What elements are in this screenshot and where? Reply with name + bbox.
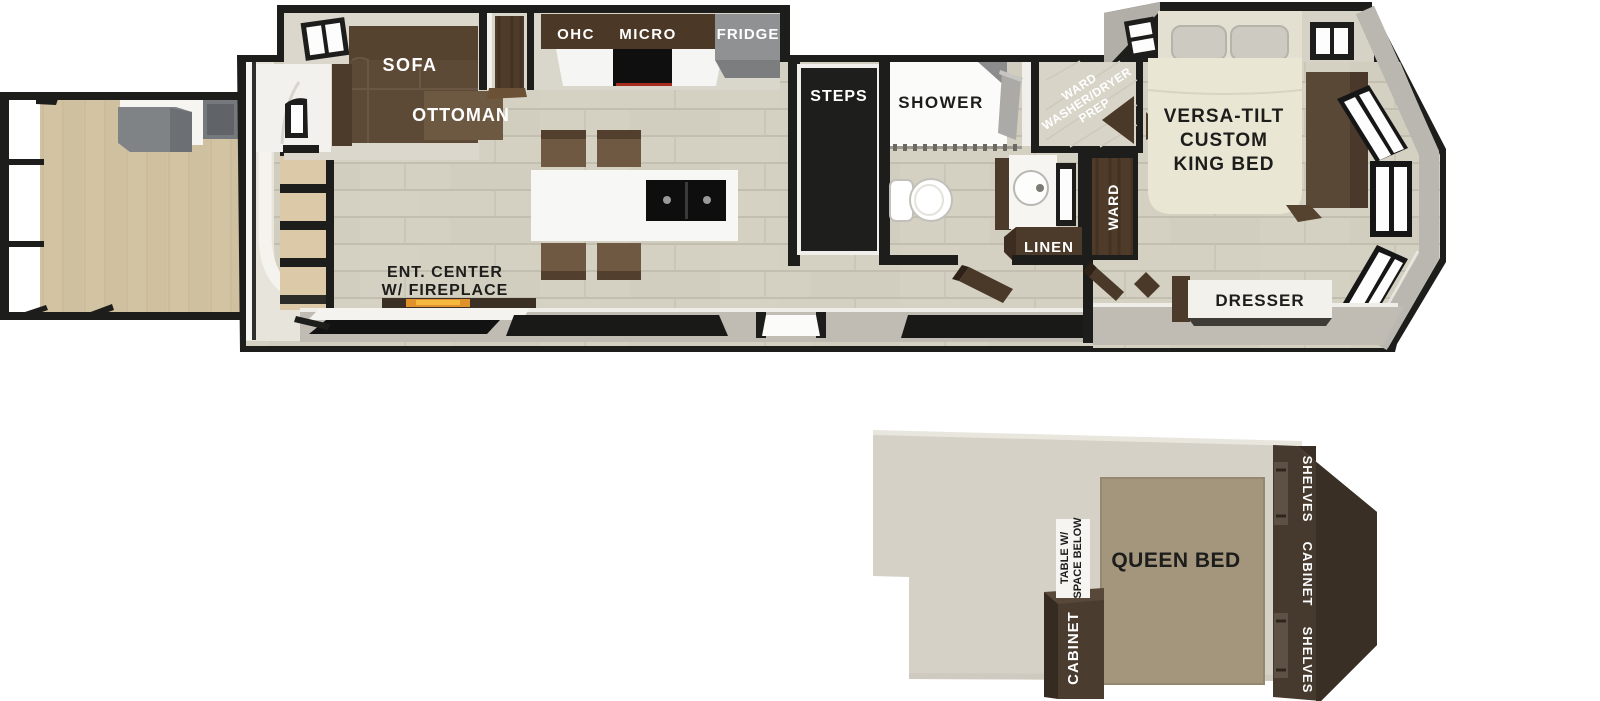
svg-text:VERSA-TILT: VERSA-TILT — [1164, 106, 1284, 127]
svg-text:TABLE W/: TABLE W/ — [1059, 532, 1071, 584]
svg-text:STEPS: STEPS — [810, 88, 867, 105]
svg-text:KING BED: KING BED — [1174, 154, 1275, 175]
svg-text:CABINET: CABINET — [1300, 542, 1315, 607]
svg-text:SHELVES: SHELVES — [1300, 627, 1315, 694]
svg-text:SHELVES: SHELVES — [1300, 456, 1315, 523]
svg-text:OTTOMAN: OTTOMAN — [412, 105, 510, 125]
svg-text:ENT. CENTER: ENT. CENTER — [387, 264, 503, 281]
svg-text:SPACE BELOW: SPACE BELOW — [1072, 517, 1084, 599]
svg-text:W/ FIREPLACE: W/ FIREPLACE — [382, 282, 509, 299]
svg-text:SHOWER: SHOWER — [898, 93, 984, 112]
svg-text:MICRO: MICRO — [619, 26, 677, 43]
svg-text:CUSTOM: CUSTOM — [1180, 130, 1268, 151]
svg-text:DRESSER: DRESSER — [1215, 291, 1304, 310]
svg-text:OHC: OHC — [557, 26, 595, 43]
svg-text:LINEN: LINEN — [1024, 239, 1074, 256]
svg-text:WARD: WARD — [1105, 184, 1121, 231]
svg-text:FRIDGE: FRIDGE — [717, 26, 780, 43]
svg-text:QUEEN BED: QUEEN BED — [1111, 549, 1240, 572]
svg-text:SOFA: SOFA — [382, 55, 437, 75]
svg-text:CABINET: CABINET — [1065, 611, 1082, 685]
